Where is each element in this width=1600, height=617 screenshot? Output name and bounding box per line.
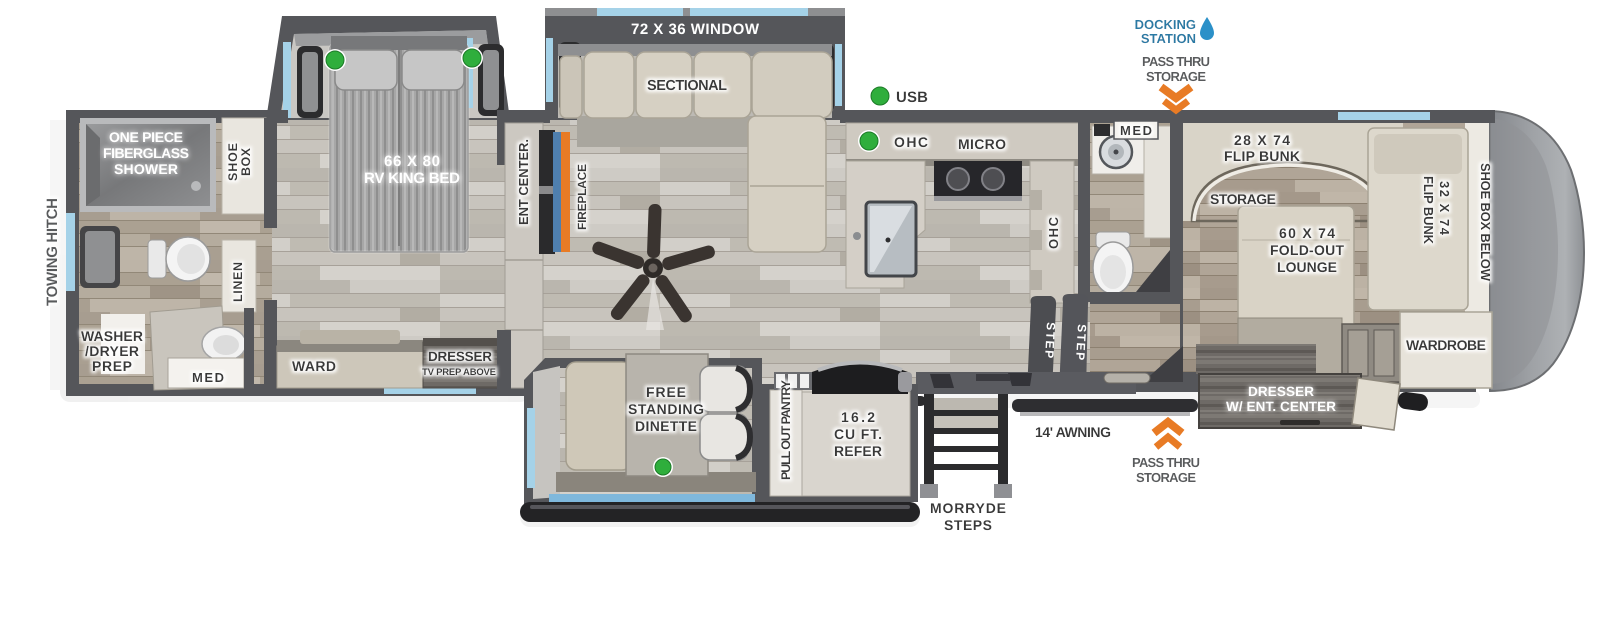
svg-text:MED: MED	[192, 370, 224, 385]
svg-text:PREP: PREP	[92, 358, 132, 374]
svg-text:SHOWER: SHOWER	[114, 161, 178, 177]
svg-text:WASHER: WASHER	[81, 328, 143, 344]
svg-text:TV PREP ABOVE: TV PREP ABOVE	[422, 367, 496, 378]
svg-text:PULL OUT PANTRY: PULL OUT PANTRY	[779, 379, 793, 480]
svg-text:FREE: FREE	[646, 384, 686, 400]
svg-text:SECTIONAL: SECTIONAL	[647, 78, 727, 94]
svg-text:FLIP BUNK: FLIP BUNK	[1224, 148, 1300, 164]
svg-text:STORAGE: STORAGE	[1146, 69, 1206, 84]
svg-text:/DRYER: /DRYER	[85, 343, 139, 359]
svg-text:MICRO: MICRO	[958, 136, 1006, 152]
svg-text:FOLD-OUT: FOLD-OUT	[1270, 242, 1344, 258]
svg-text:MORRYDE: MORRYDE	[930, 500, 1006, 516]
svg-text:STATION: STATION	[1141, 31, 1196, 46]
svg-text:STEP: STEP	[1042, 322, 1058, 359]
svg-text:STEP: STEP	[1073, 324, 1089, 361]
svg-text:STEPS: STEPS	[944, 517, 992, 533]
svg-text:SHOE: SHOE	[226, 143, 240, 181]
svg-text:60 X 74: 60 X 74	[1279, 225, 1335, 241]
svg-text:STORAGE: STORAGE	[1136, 470, 1196, 485]
svg-text:DINETTE: DINETTE	[635, 418, 697, 434]
svg-text:STORAGE: STORAGE	[1210, 191, 1276, 207]
svg-text:LINEN: LINEN	[231, 262, 245, 302]
svg-text:USB: USB	[896, 89, 928, 106]
svg-text:TOWING HITCH: TOWING HITCH	[44, 198, 61, 306]
svg-text:PASS THRU: PASS THRU	[1132, 455, 1200, 470]
svg-text:32 X 74: 32 X 74	[1437, 181, 1452, 236]
svg-text:FIREPLACE: FIREPLACE	[575, 164, 589, 230]
svg-text:OHC: OHC	[1046, 216, 1061, 249]
svg-text:66 X 80: 66 X 80	[384, 153, 440, 170]
svg-text:STANDING: STANDING	[628, 401, 704, 417]
svg-text:16.2: 16.2	[841, 409, 875, 425]
svg-text:ENT CENTER.: ENT CENTER.	[516, 139, 531, 225]
svg-text:72 X 36 WINDOW: 72 X 36 WINDOW	[631, 21, 760, 38]
svg-text:REFER: REFER	[834, 443, 882, 459]
svg-text:LOUNGE: LOUNGE	[1277, 259, 1337, 275]
svg-text:W/ ENT. CENTER: W/ ENT. CENTER	[1226, 399, 1336, 414]
svg-text:DOCKING: DOCKING	[1135, 17, 1196, 32]
svg-text:BOX: BOX	[239, 147, 253, 176]
svg-text:WARD: WARD	[292, 358, 336, 374]
svg-text:OHC: OHC	[894, 134, 928, 150]
svg-text:WARDROBE: WARDROBE	[1406, 337, 1486, 353]
svg-text:PASS THRU: PASS THRU	[1142, 54, 1210, 69]
svg-text:28 X 74: 28 X 74	[1234, 132, 1290, 148]
svg-text:MED: MED	[1120, 123, 1152, 138]
svg-text:14' AWNING: 14' AWNING	[1035, 424, 1111, 440]
svg-text:FIBERGLASS: FIBERGLASS	[103, 145, 189, 161]
svg-text:RV KING BED: RV KING BED	[364, 170, 460, 187]
svg-text:CU FT.: CU FT.	[834, 426, 882, 442]
svg-text:DRESSER: DRESSER	[428, 349, 492, 364]
svg-text:DRESSER: DRESSER	[1248, 384, 1314, 399]
svg-text:FLIP BUNK: FLIP BUNK	[1421, 176, 1436, 245]
svg-text:SHOE BOX BELOW: SHOE BOX BELOW	[1478, 163, 1493, 282]
svg-text:ONE PIECE: ONE PIECE	[109, 129, 183, 145]
